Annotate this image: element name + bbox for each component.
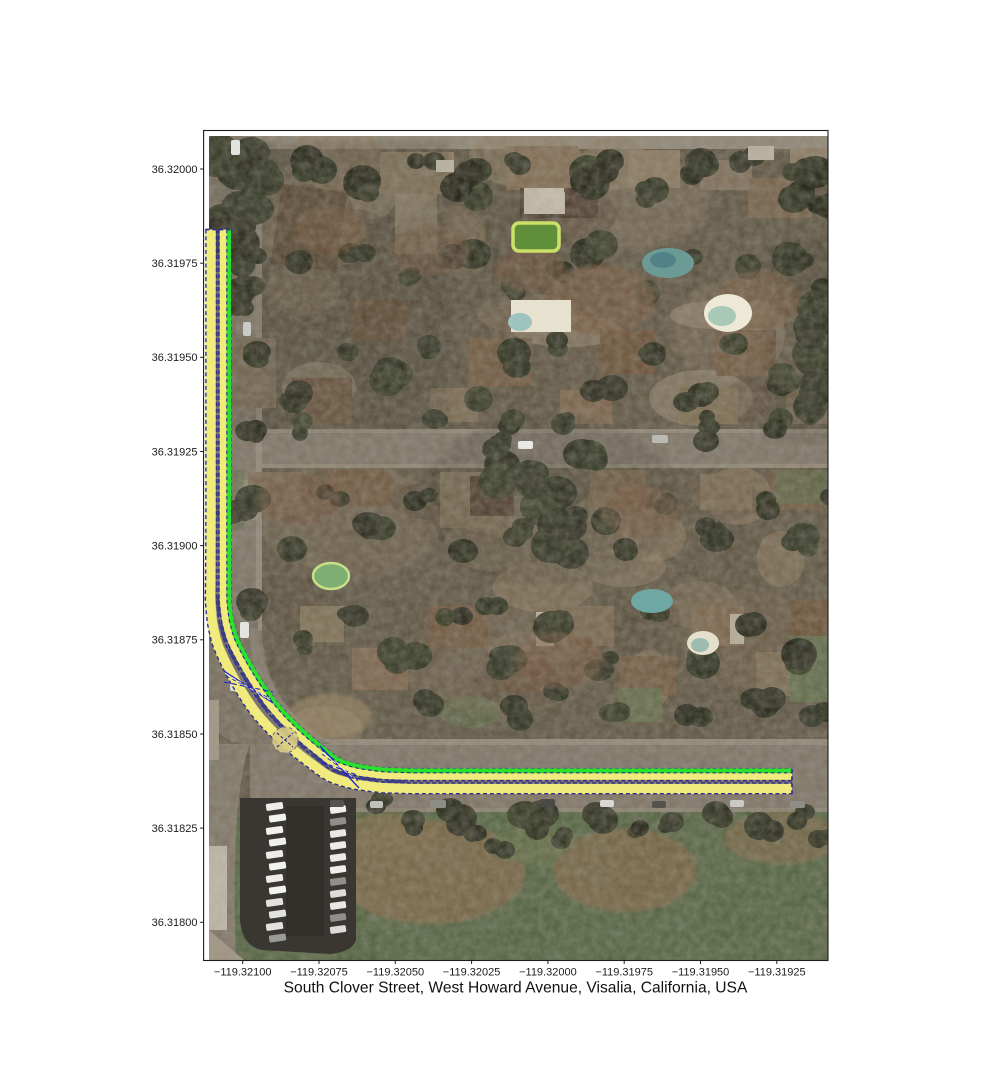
svg-text:36.31850: 36.31850 xyxy=(152,729,198,741)
svg-text:36.31825: 36.31825 xyxy=(152,823,198,835)
svg-text:South Clover Street, West Howa: South Clover Street, West Howard Avenue,… xyxy=(284,980,748,997)
svg-text:−119.32075: −119.32075 xyxy=(290,967,348,979)
svg-text:36.31975: 36.31975 xyxy=(152,258,198,270)
svg-text:−119.32025: −119.32025 xyxy=(443,967,501,979)
svg-text:36.31875: 36.31875 xyxy=(152,635,198,647)
svg-text:36.31950: 36.31950 xyxy=(152,352,198,364)
svg-text:−119.32050: −119.32050 xyxy=(366,967,424,979)
svg-text:−119.32000: −119.32000 xyxy=(519,967,577,979)
svg-text:−119.31925: −119.31925 xyxy=(748,967,806,979)
svg-text:36.32000: 36.32000 xyxy=(152,164,198,176)
svg-text:−119.32100: −119.32100 xyxy=(214,967,272,979)
svg-text:36.31925: 36.31925 xyxy=(152,446,198,458)
svg-text:36.31900: 36.31900 xyxy=(152,541,198,553)
svg-text:−119.31975: −119.31975 xyxy=(595,967,653,979)
svg-text:36.31800: 36.31800 xyxy=(152,917,198,929)
svg-text:−119.31950: −119.31950 xyxy=(672,967,730,979)
